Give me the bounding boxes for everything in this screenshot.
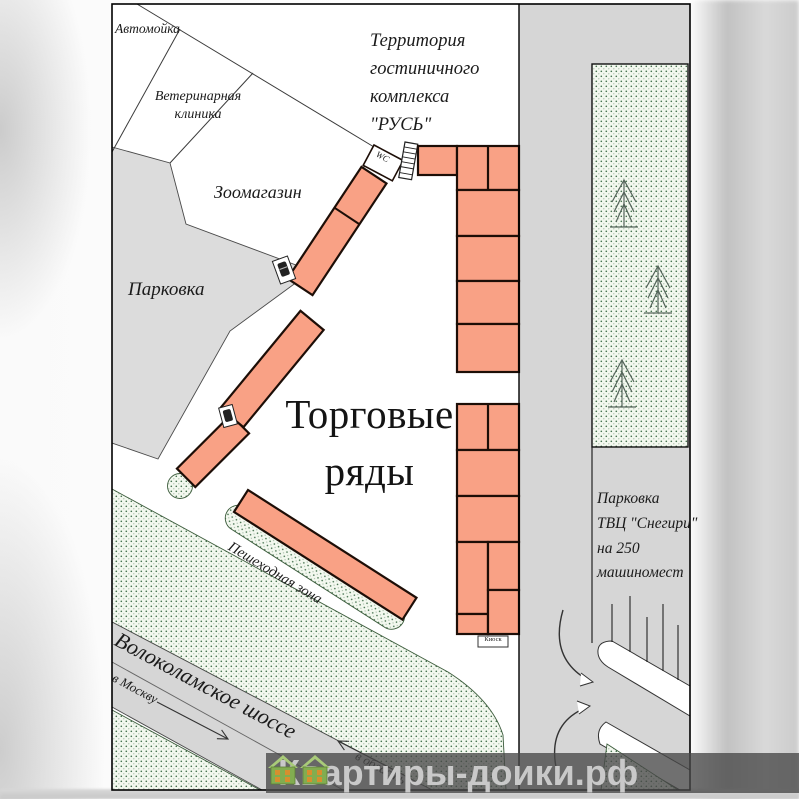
hotel-territory-label: Территория гостиничного комплекса "РУСЬ" bbox=[370, 27, 479, 139]
site-plan-screenshot: Автомойка Ветеринарная клиника Зоомагази… bbox=[0, 0, 799, 799]
watermark-text-right: ики.рф bbox=[513, 755, 639, 791]
watermark-bar: Квартиры-до ики.рф bbox=[266, 753, 799, 793]
houses-icon bbox=[267, 753, 333, 787]
kiosk-label: Киоск bbox=[480, 637, 506, 644]
snegiri-parking-label: Парковка ТВЦ "Снегири" на 250 машиномест bbox=[597, 487, 697, 586]
parking-label: Парковка bbox=[128, 278, 205, 302]
snegiri-green-area bbox=[592, 64, 688, 447]
pet-shop-label: Зоомагазин bbox=[214, 181, 302, 204]
vet-clinic-label: Ветеринарная клиника bbox=[150, 88, 246, 123]
car-wash-label: Автомойка bbox=[115, 21, 180, 38]
market-title: Торговые ряды bbox=[272, 386, 467, 499]
